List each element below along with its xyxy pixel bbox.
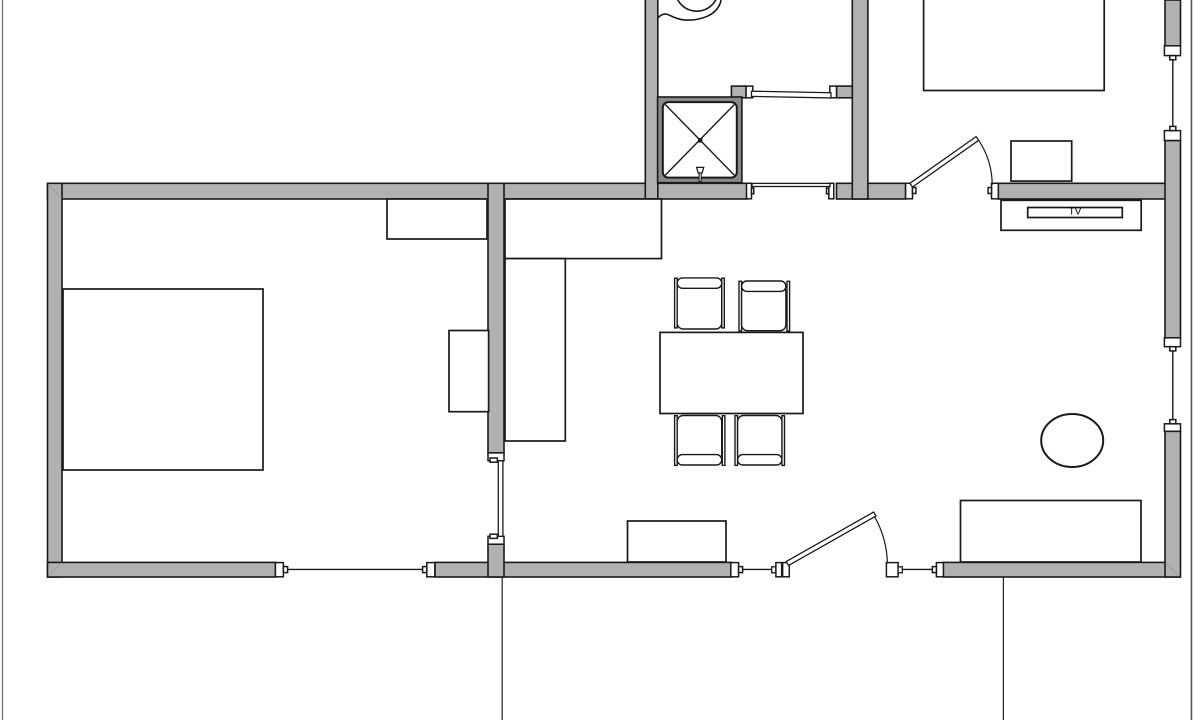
svg-text:TV: TV [1069,206,1082,217]
